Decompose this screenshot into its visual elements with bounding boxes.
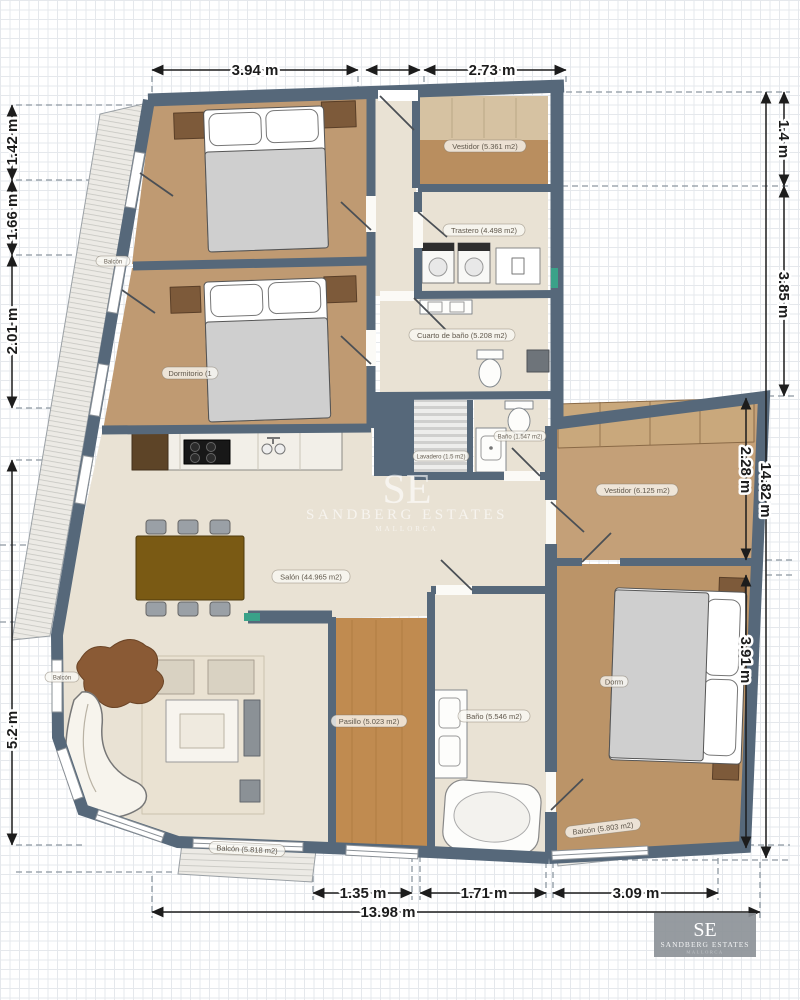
label-vestidor-right: Vestidor (6.125 m2) [604, 486, 670, 495]
dim-bottom-total: 13.98 m [360, 904, 415, 921]
label-pasillo: Pasillo (5.023 m2) [339, 717, 400, 726]
dim-right-4: 3.91 m [737, 637, 754, 684]
dim-right-total: 14.82 m [757, 462, 774, 517]
dim-right-1: 1.4 m [775, 120, 792, 158]
label-cuarto-bano: Cuarto de baño (5.208 m2) [417, 331, 508, 340]
toilet [477, 350, 503, 387]
dim-bottom-3: 3.09 m [613, 885, 660, 902]
dim-left-2: 1.66 m [4, 194, 21, 241]
label-bano-principal: Baño (5.546 m2) [466, 712, 522, 721]
dim-right-2: 3.85 m [775, 272, 792, 319]
label-dormitorio-right: Dorm [605, 678, 623, 687]
dim-left-4: 5.2 m [4, 711, 21, 749]
washer-dryer [422, 243, 540, 284]
kitchen-counter [132, 432, 342, 470]
dim-bottom-1: 1.35 m [340, 885, 387, 902]
dim-top-1: 3.94 m [232, 62, 279, 79]
dim-left-1: 1.42 m [4, 119, 21, 166]
wall-chunk [374, 396, 414, 476]
label-balcon-left-upper: Balcón [104, 260, 122, 266]
logo-name: SANDBERG ESTATES [661, 940, 750, 949]
label-bano-small: Baño (1.547 m2) [498, 435, 543, 441]
logo-subtitle: MALLORCA [686, 950, 723, 955]
watermark-name: SANDBERG ESTATES [306, 507, 508, 523]
teal-mark-2 [244, 613, 260, 621]
label-balcon-left-lower: Balcón [53, 676, 71, 682]
label-dormitorio-left: Dormitorio (1 [168, 369, 211, 378]
dim-bottom-2: 1.71 m [461, 885, 508, 902]
teal-mark-1 [551, 268, 558, 288]
dim-top-2: 2.73 m [469, 62, 516, 79]
label-salon: Salón (44.965 m2) [280, 573, 342, 582]
watermark-subtitle: MALLORCA [375, 525, 438, 533]
dim-left-3: 2.01 m [4, 308, 21, 355]
brand-logo: SE SANDBERG ESTATES MALLORCA [654, 913, 756, 957]
lavadero-floor [414, 400, 470, 474]
label-trastero: Trastero (4.498 m2) [451, 226, 517, 235]
dining-table [136, 520, 244, 616]
dim-right-3: 2.28 m [737, 447, 754, 494]
floorplan-canvas: Vestidor (5.361 m2) Trastero (4.498 m2) … [0, 0, 800, 1000]
label-vestidor-top: Vestidor (5.361 m2) [452, 142, 518, 151]
label-lavadero: Lavadero (1.5 m2) [416, 455, 465, 461]
bathtub [442, 779, 543, 856]
double-bed-right [608, 574, 747, 780]
hallway-floor [374, 92, 416, 296]
logo-initials: SE [693, 919, 716, 941]
pasillo-floor [332, 618, 431, 852]
floor-plan-svg: Vestidor (5.361 m2) Trastero (4.498 m2) … [0, 0, 800, 1000]
